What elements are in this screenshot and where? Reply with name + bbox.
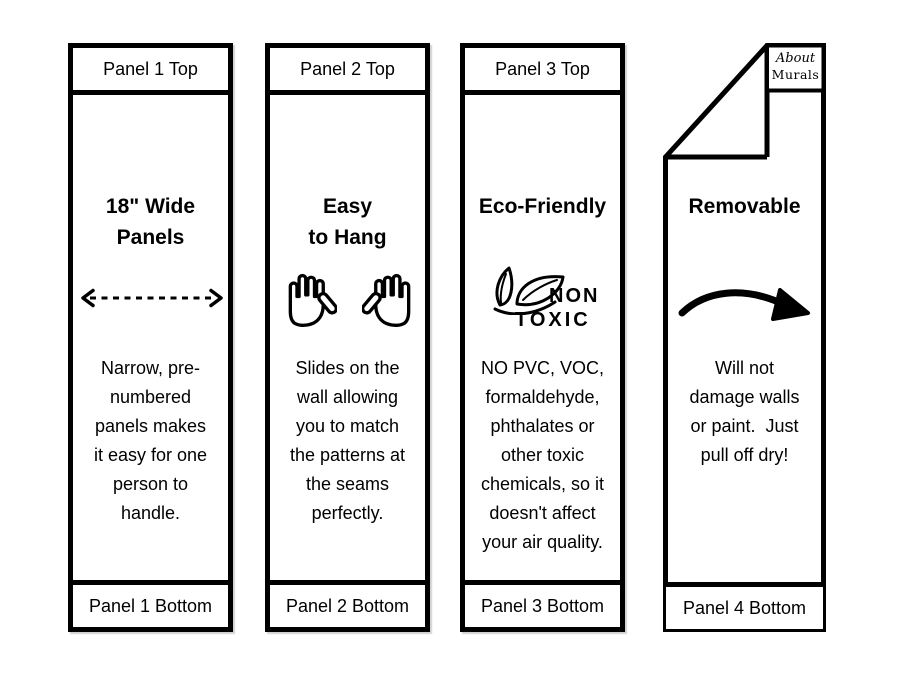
panel-1: Panel 1 Top 18" Wide Panels Narrow, pre-…: [68, 43, 233, 632]
double-headed-dashed-arrow-icon: [78, 288, 226, 308]
panel-3-body: NO PVC, VOC, formaldehyde, phthalates or…: [465, 354, 620, 557]
panel-1-header: Panel 1 Top: [73, 48, 228, 95]
logo-about-text: About: [769, 51, 822, 67]
panel-1-title: 18" Wide Panels: [73, 191, 228, 253]
raised-hand-left-icon: [287, 268, 337, 330]
infographic-canvas: Panel 1 Top 18" Wide Panels Narrow, pre-…: [0, 0, 900, 675]
aboutmurals-logo: About Murals: [769, 51, 822, 83]
panel-2: Panel 2 Top Easy to Hang Slides on the w…: [265, 43, 430, 632]
panel-1-body: Narrow, pre- numbered panels makes it ea…: [73, 354, 228, 528]
panel-2-header: Panel 2 Top: [270, 48, 425, 95]
panel-4-body: Will not damage walls or paint. Just pul…: [663, 354, 826, 470]
panel-4-footer: Panel 4 Bottom: [666, 582, 823, 629]
logo-murals-text: Murals: [769, 67, 822, 83]
panel-3-header: Panel 3 Top: [465, 48, 620, 95]
panel-4-title: Removable: [663, 191, 826, 222]
folded-corner-sheet-outline: [663, 43, 826, 632]
panel-3-title: Eco-Friendly: [465, 191, 620, 222]
panel-3-footer: Panel 3 Bottom: [465, 580, 620, 627]
non-toxic-label-line2: TOXIC: [515, 309, 591, 332]
panel-2-footer: Panel 2 Bottom: [270, 580, 425, 627]
panel-2-body: Slides on the wall allowing you to match…: [270, 354, 425, 528]
non-toxic-label-line1: NON: [549, 285, 599, 308]
curved-arrow-icon: [677, 277, 813, 325]
raised-hand-right-icon: [362, 268, 412, 330]
panel-2-title: Easy to Hang: [270, 191, 425, 253]
panel-4: About Murals Removable Will not damage w…: [663, 43, 826, 632]
panel-3: Panel 3 Top Eco-Friendly NON TOXIC NO PV…: [460, 43, 625, 632]
panel-1-footer: Panel 1 Bottom: [73, 580, 228, 627]
